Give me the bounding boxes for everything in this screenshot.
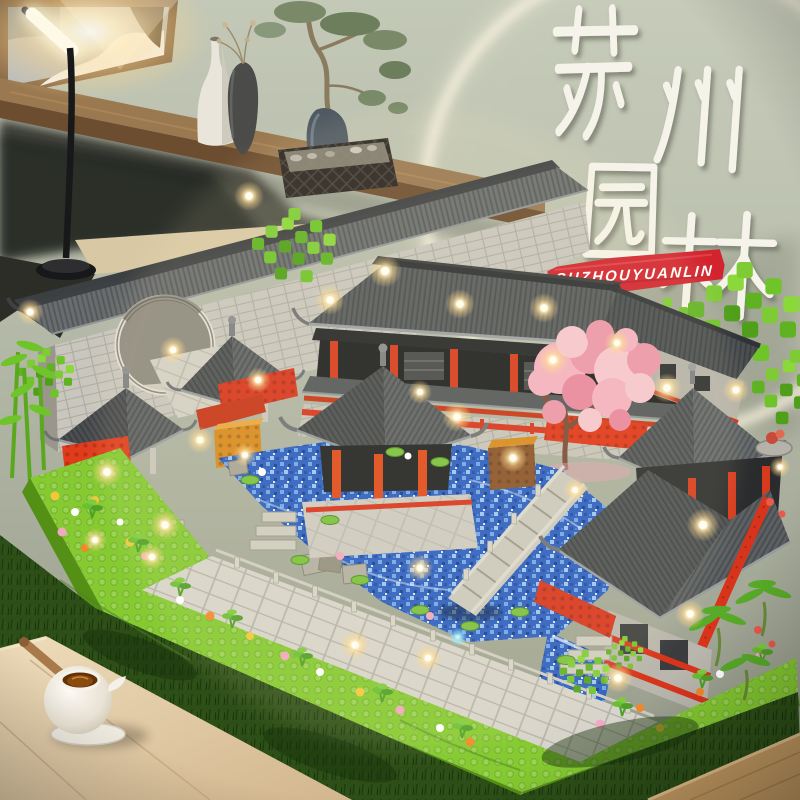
scene-canvas: SUZHOUYUANLIN [0, 0, 800, 800]
product-photo: 苏州园林 [0, 0, 800, 800]
vignette [0, 0, 800, 800]
